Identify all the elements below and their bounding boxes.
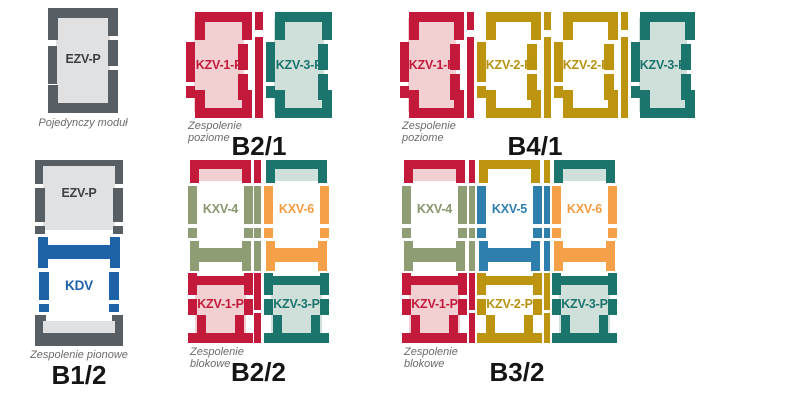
frame-piece [402,273,411,295]
frame-piece [531,90,541,108]
module-kzv-3-p: KZV-3-P [552,273,617,343]
strip-segment [469,228,475,238]
frame-piece [39,304,49,312]
frame-piece [113,188,123,222]
frame-piece [35,188,45,222]
frame-piece [35,226,45,234]
strip-segment [621,37,628,118]
frame-piece [318,169,327,183]
frame-piece [242,90,252,108]
frame-piece [477,228,486,238]
frame-piece [108,85,118,103]
frame-piece [479,169,488,183]
frame-piece [188,273,197,295]
strip-segment [254,186,261,224]
frame-piece [563,108,618,118]
frame-piece [531,22,541,40]
module-kzv-1-p: KZV-1-P [400,12,464,118]
frame-piece [197,315,206,333]
frame-piece [640,90,650,108]
module-label: KXV-6 [264,202,329,216]
frame-piece [35,333,123,346]
group-title: B1/2 [10,360,148,391]
frame-piece [563,90,573,108]
frame-piece [409,90,419,108]
frame-piece [413,169,456,181]
frame-piece [311,315,320,333]
frame-piece [554,169,563,183]
strip-segment [254,160,261,183]
frame-piece [563,12,618,22]
module-label: KZV-2-P [554,58,618,72]
frame-piece [477,333,542,343]
module-label: KZV-1-P [188,297,253,311]
group-title: B3/2 [402,357,632,388]
frame-piece [477,273,486,295]
frame-piece [486,315,495,333]
strip-segment [254,241,261,271]
frame-piece [486,90,496,108]
frame-piece [404,160,465,169]
frame-piece [264,273,273,295]
group-title: B2/1 [186,131,332,162]
frame-piece [195,108,252,118]
module-label: KXV-5 [477,202,542,216]
frame-piece [640,22,650,40]
module-kxv-6: KXV-6 [552,160,617,271]
module-label: KXV-4 [402,202,467,216]
connector-strip [254,160,261,343]
module-label: KZV-2-P [477,297,542,311]
module-kzv-2-p: KZV-2-P [477,12,541,118]
frame-piece [195,22,205,40]
group-caption: Pojedynczy moduł [18,117,148,129]
frame-piece [411,315,420,333]
frame-piece [275,12,332,22]
frame-piece [402,228,411,238]
module-label: KZV-2-P [477,58,541,72]
connector-strip [467,12,474,118]
module-kzv-3-p: KZV-3-P [631,12,695,118]
strip-segment [544,37,551,118]
connector-bar [554,248,615,262]
frame-piece [48,8,118,18]
frame-piece [409,12,464,22]
connector-strip [255,12,263,118]
frame-piece [563,22,573,40]
frame-piece [552,273,561,295]
frame-piece [266,169,275,183]
frame-piece [458,273,467,295]
frame-piece [264,333,329,343]
frame-piece [599,315,608,333]
frame-piece [322,90,332,108]
frame-piece [186,86,195,98]
module-label: KDV [35,278,123,293]
frame-piece [199,169,242,181]
module-label: KZV-3-P [631,58,695,72]
frame-piece [244,228,253,238]
module-kzv-2-p: KZV-2-P [554,12,618,118]
frame-piece [608,273,617,295]
module-kzv-3-p: KZV-3-P [266,12,332,118]
module-kxv-5: KXV-5 [477,160,542,271]
module-kxv-6: KXV-6 [264,160,329,271]
frame-piece [456,169,465,183]
frame-piece [402,333,467,343]
frame-piece [266,86,275,98]
strip-segment [467,37,474,118]
frame-piece [195,90,205,108]
frame-piece [458,228,467,238]
frame-piece [477,86,486,98]
frame-piece [195,12,252,22]
module-label: KZV-1-P [402,297,467,311]
frame-piece [454,90,464,108]
module-kzv-1-p: KZV-1-P [186,12,252,118]
connector-strip [544,160,550,343]
frame-piece [563,169,606,181]
frame-piece [486,12,541,22]
frame-piece [606,169,615,183]
connector-bar [190,248,251,262]
frame-piece [188,333,253,343]
frame-piece [242,169,251,183]
strip-segment [469,313,475,343]
frame-piece [533,273,542,295]
frame-piece [640,108,695,118]
module-label: EZV-P [35,186,123,200]
module-label: KXV-6 [552,202,617,216]
frame-piece [273,315,282,333]
group-b12: EZV-P KDV [35,160,123,346]
frame-piece [631,86,640,98]
strip-segment [254,313,261,343]
frame-piece [275,169,318,181]
group-title: B4/1 [400,131,670,162]
strip-segment [544,228,550,238]
strip-segment [469,160,475,183]
frame-piece [48,85,58,103]
frame-piece [264,228,273,238]
frame-piece [404,169,413,183]
strip-segment [255,37,263,118]
frame-piece [108,18,118,36]
strip-segment [254,273,261,310]
connector-bar [479,248,540,262]
strip-segment [544,241,550,271]
frame-piece [449,315,458,333]
strip-segment [469,273,475,310]
frame-piece [640,12,695,22]
frame-piece [242,22,252,40]
frame-piece [486,108,541,118]
group-title: B2/2 [188,357,329,388]
module-label: KZV-3-P [266,58,332,72]
strip-segment [621,12,628,30]
frame-piece [48,18,58,40]
frame-piece [48,103,118,113]
module-kzv-2-p: KZV-2-P [477,273,542,343]
strip-segment [544,160,550,183]
frame-piece [552,333,617,343]
module-label: KZV-1-P [400,58,464,72]
strip-segment [469,241,475,271]
frame-piece [244,273,253,295]
flashing-combinations-diagram: EZV-P Pojedynczy moduł KZV-1-P [0,0,800,400]
frame-piece [479,160,540,169]
module-label: KZV-3-P [264,297,329,311]
module-kzv-3-p: KZV-3-P [264,273,329,343]
frame-piece [113,226,123,234]
frame-piece [322,22,332,40]
frame-piece [554,86,563,98]
frame-piece [561,315,570,333]
module-label: KXV-4 [188,202,253,216]
strip-segment [544,313,550,343]
module-kzv-1-p: KZV-1-P [402,273,467,343]
module-kxv-4: KXV-4 [402,160,467,271]
frame-piece [454,22,464,40]
frame-piece [190,169,199,183]
frame-piece [275,108,332,118]
strip-segment [255,12,263,30]
frame-piece [524,315,533,333]
frame-piece [488,169,531,181]
module-label: EZV-P [48,52,118,66]
frame-piece [685,22,695,40]
frame-piece [554,160,615,169]
module-kxv-4: KXV-4 [188,160,253,271]
strip-segment [544,186,550,224]
strip-segment [544,273,550,310]
connector-bar [404,248,465,262]
frame-piece [400,86,409,98]
module-label: KZV-1-P [186,58,252,72]
frame-piece [409,108,464,118]
strip-segment [254,228,261,238]
frame-piece [552,228,561,238]
module-ezv-p: EZV-P [48,8,118,113]
frame-piece [190,160,251,169]
connector-strip [621,12,628,118]
frame-piece [608,228,617,238]
strip-segment [469,186,475,224]
connector-bar [266,248,327,262]
frame-piece [275,22,285,40]
module-label: KZV-3-P [552,297,617,311]
connector-strip [544,12,551,118]
frame-piece [409,22,419,40]
frame-piece [266,160,327,169]
frame-piece [486,22,496,40]
frame-piece [531,169,540,183]
frame-piece [320,228,329,238]
frame-piece [188,228,197,238]
strip-segment [467,12,474,30]
frame-piece [685,90,695,108]
frame-piece [235,315,244,333]
frame-piece [608,90,618,108]
frame-piece [275,90,285,108]
kdv-connector-bar [38,245,120,259]
module-kzv-1-p: KZV-1-P [188,273,253,343]
frame-piece [320,273,329,295]
frame-piece [109,304,119,312]
strip-segment [544,12,551,30]
connector-strip [469,160,475,343]
frame-piece [533,228,542,238]
frame-piece [608,22,618,40]
